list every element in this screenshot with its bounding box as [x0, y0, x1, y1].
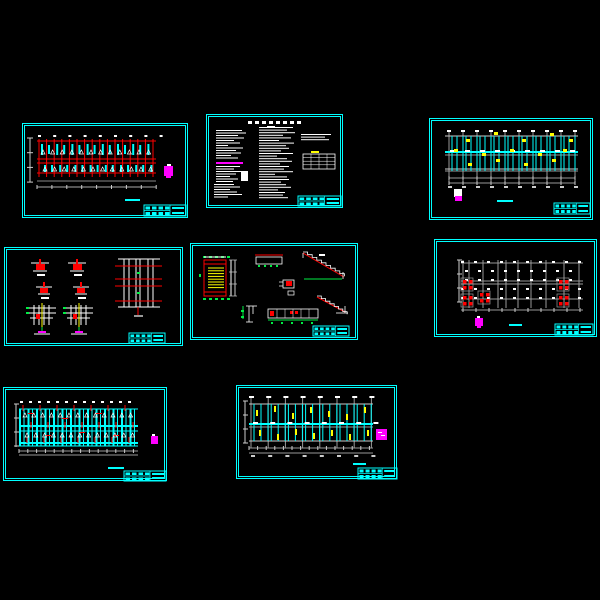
sheet-5-stair-details[interactable]: [190, 243, 358, 340]
sheet-7-dense-slab-plan[interactable]: [3, 387, 167, 481]
sheet-3-beam-plan-yellow-marks-drawing: [430, 119, 594, 221]
sheet-6-column-layout-plan[interactable]: [434, 239, 597, 337]
sheet-3-beam-plan-yellow-marks[interactable]: [429, 118, 593, 220]
sheet-7-dense-slab-plan-drawing: [4, 388, 168, 482]
sheet-1-red-grid-framing-plan[interactable]: [22, 123, 188, 218]
sheet-4-foundation-column-details-drawing: [5, 248, 184, 347]
sheet-4-foundation-column-details[interactable]: [4, 247, 183, 346]
sheet-8-beam-plan-yellow-bars-drawing: [237, 386, 398, 480]
cad-workspace: [0, 0, 600, 600]
sheet-8-beam-plan-yellow-bars[interactable]: [236, 385, 397, 479]
sheet-1-red-grid-framing-plan-drawing: [23, 124, 189, 219]
sheet-6-column-layout-plan-drawing: [435, 240, 598, 338]
sheet-5-stair-details-drawing: [191, 244, 359, 341]
sheet-2-general-notes[interactable]: [206, 114, 343, 208]
sheet-2-general-notes-drawing: [207, 115, 344, 209]
